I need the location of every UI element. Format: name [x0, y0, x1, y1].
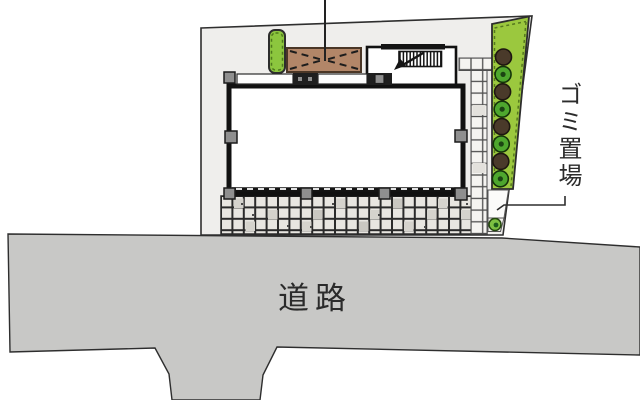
tree-icon [494, 119, 510, 135]
building-outline [229, 86, 463, 194]
road-label: 道路 [278, 273, 352, 318]
site-plan-drawing [0, 0, 640, 400]
tree-icon [493, 153, 509, 169]
planting-strip-east [492, 17, 529, 190]
porch-north-1 [237, 74, 293, 84]
porch-divider-2 [367, 73, 392, 85]
tree-icon [495, 84, 511, 100]
garbage-storage-area [488, 190, 509, 232]
site-plan-canvas: 道路 ゴミ置場 [0, 0, 640, 400]
tree-center-dot [498, 176, 503, 181]
tree-center-dot [500, 107, 505, 112]
porch-divider-1 [293, 73, 318, 85]
planting-strip-small [269, 30, 285, 73]
tree-center-dot [500, 72, 505, 77]
shrub-icon [489, 219, 501, 231]
garbage-area-label: ゴミ置場 [551, 82, 586, 190]
paved-area [221, 196, 487, 234]
porch-north-2 [318, 74, 367, 84]
tree-icon [496, 49, 512, 65]
tree-center-dot [499, 141, 504, 146]
building [224, 72, 467, 200]
